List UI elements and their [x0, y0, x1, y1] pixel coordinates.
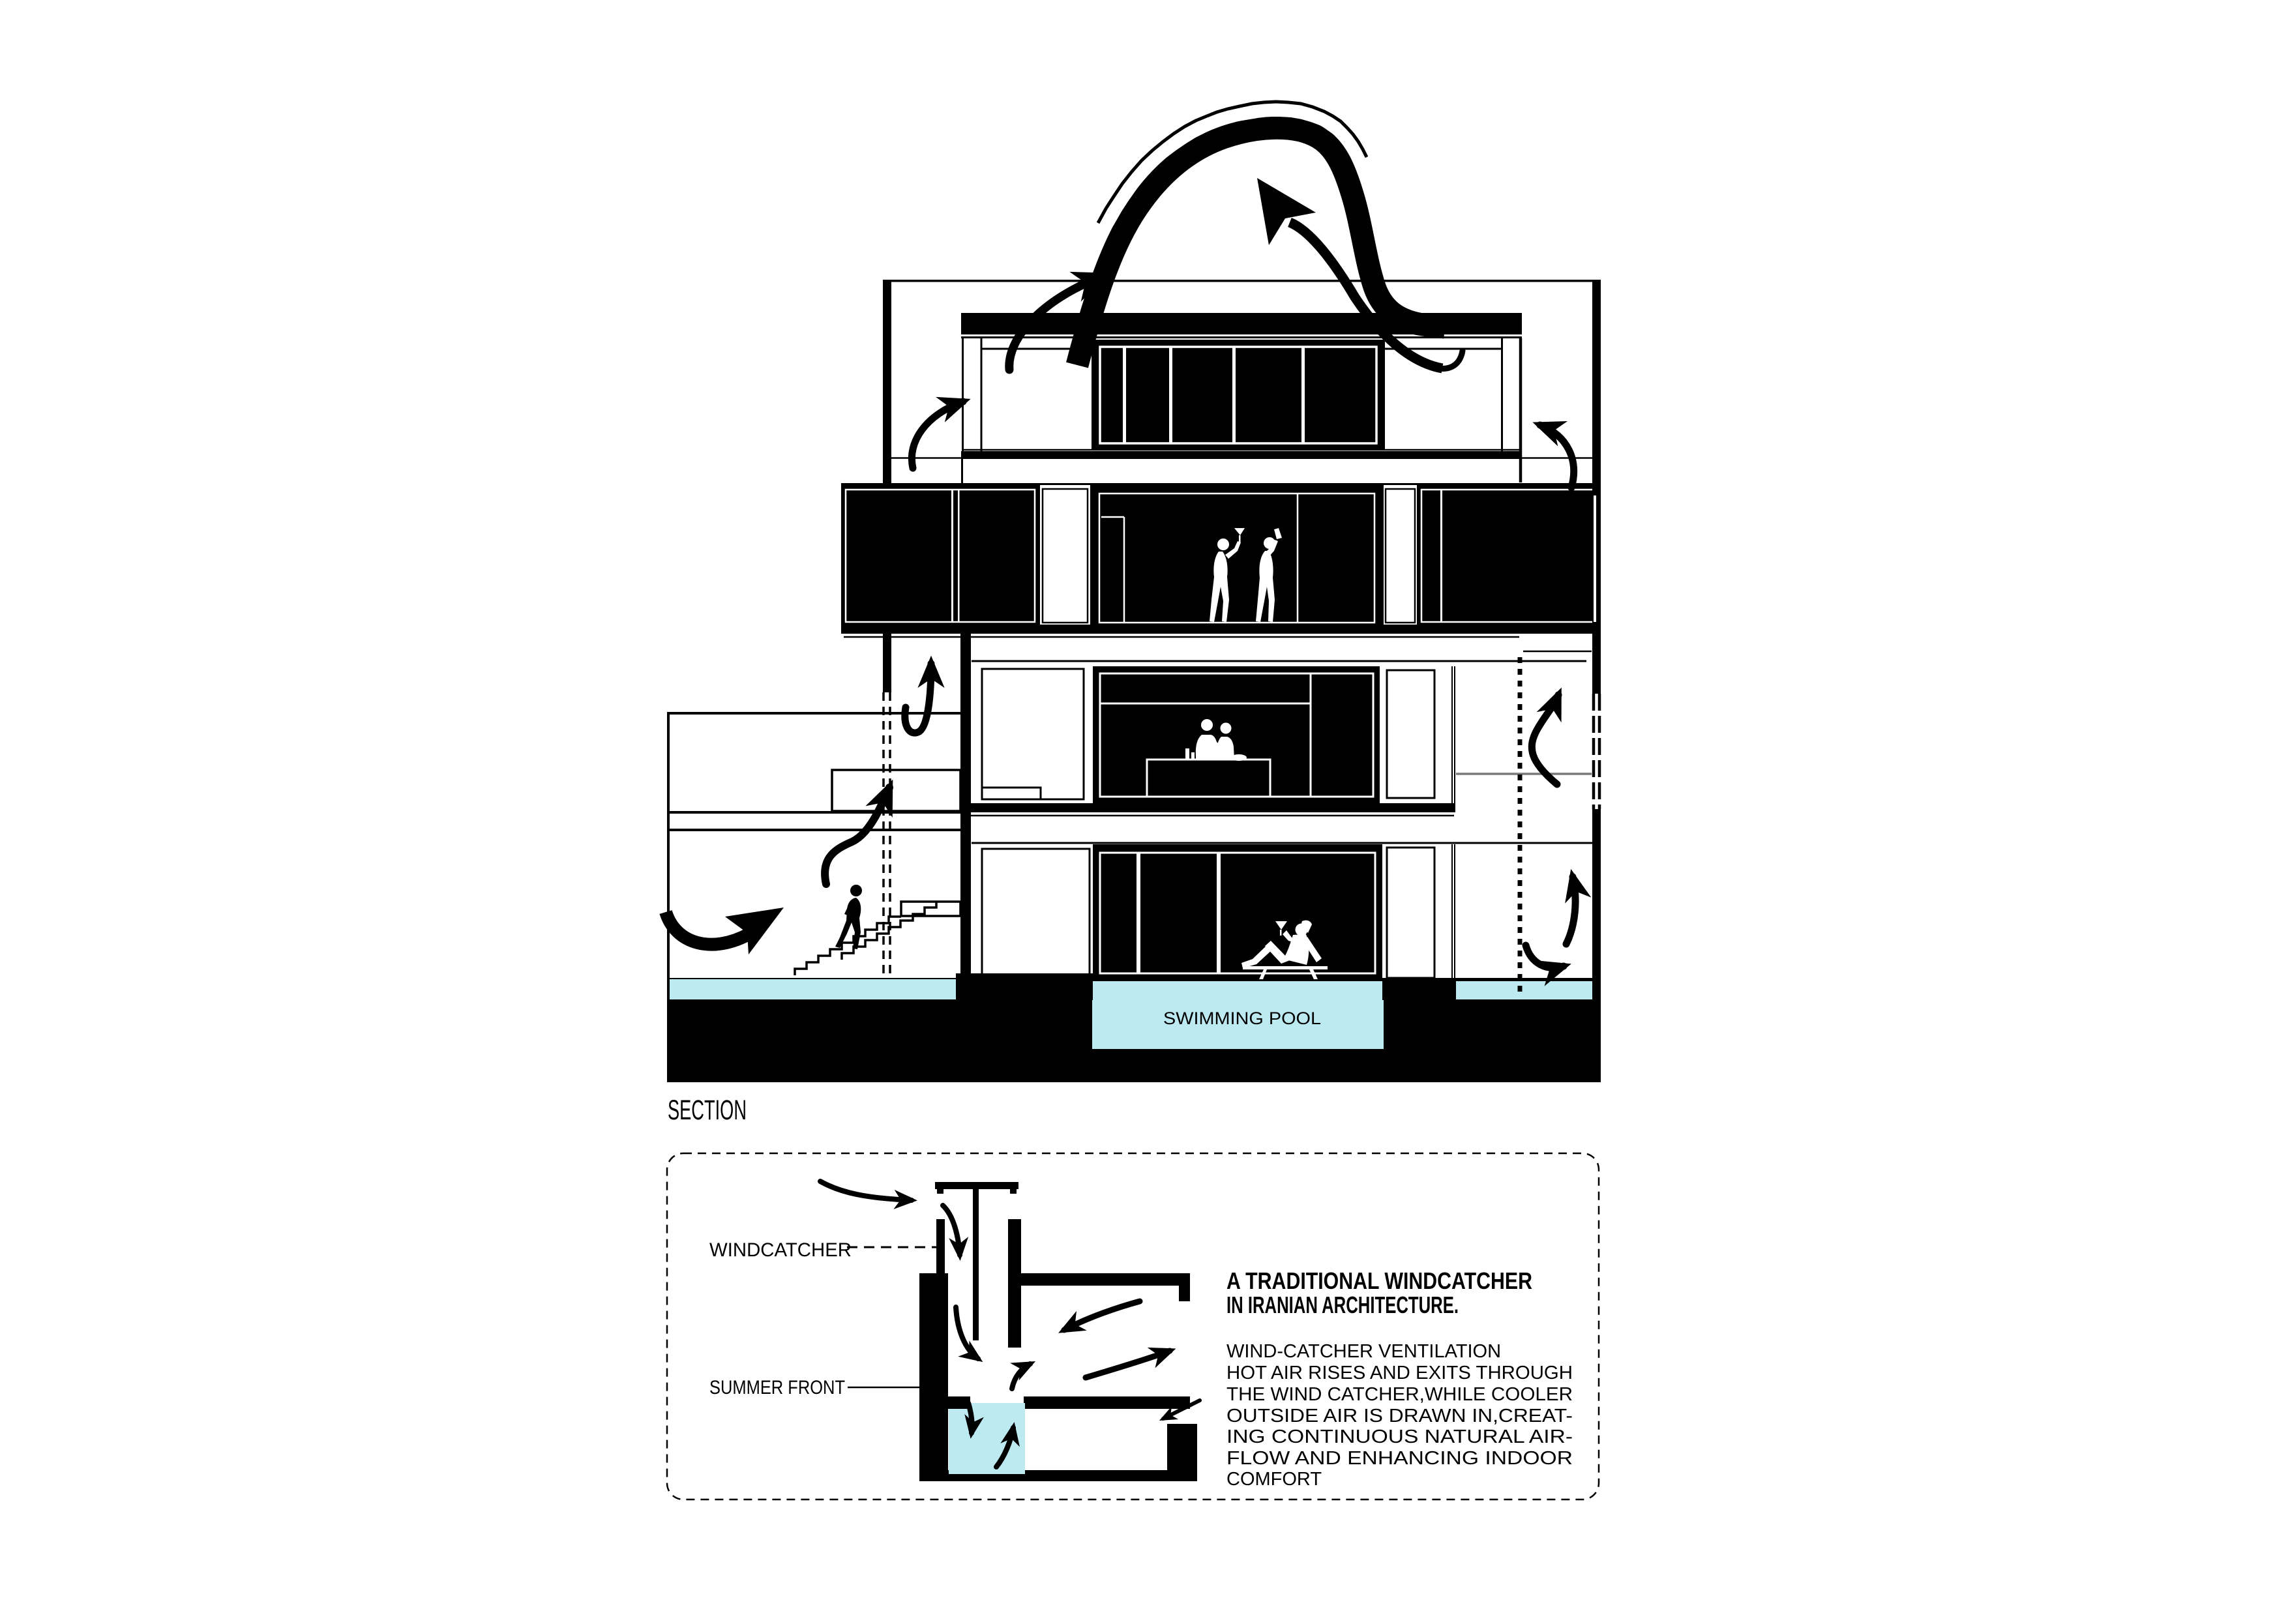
- svg-text:SUMMER FRONT: SUMMER FRONT: [709, 1377, 845, 1398]
- svg-text:THE WIND CATCHER,WHILE COOLER: THE WIND CATCHER,WHILE COOLER: [1226, 1384, 1573, 1405]
- svg-text:SWIMMING POOL: SWIMMING POOL: [1163, 1009, 1321, 1028]
- svg-text:FLOW AND ENHANCING INDOOR: FLOW AND ENHANCING INDOOR: [1226, 1448, 1573, 1469]
- svg-text:WIND-CATCHER VENTILATION: WIND-CATCHER VENTILATION: [1226, 1341, 1501, 1362]
- svg-text:WINDCATCHER: WINDCATCHER: [709, 1239, 852, 1261]
- svg-text:COMFORT: COMFORT: [1226, 1469, 1322, 1490]
- svg-text:HOT AIR RISES AND EXITS THROUG: HOT AIR RISES AND EXITS THROUGH: [1226, 1363, 1573, 1383]
- svg-text:IN IRANIAN ARCHITECTURE.: IN IRANIAN ARCHITECTURE.: [1226, 1292, 1459, 1318]
- svg-text:ING CONTINUOUS NATURAL AIR-: ING CONTINUOUS NATURAL AIR-: [1226, 1426, 1573, 1447]
- svg-text:A TRADITIONAL WINDCATCHER: A TRADITIONAL WINDCATCHER: [1226, 1267, 1532, 1294]
- svg-text:SECTION: SECTION: [668, 1095, 747, 1126]
- svg-text:OUTSIDE AIR IS DRAWN IN,CREAT-: OUTSIDE AIR IS DRAWN IN,CREAT-: [1226, 1406, 1573, 1426]
